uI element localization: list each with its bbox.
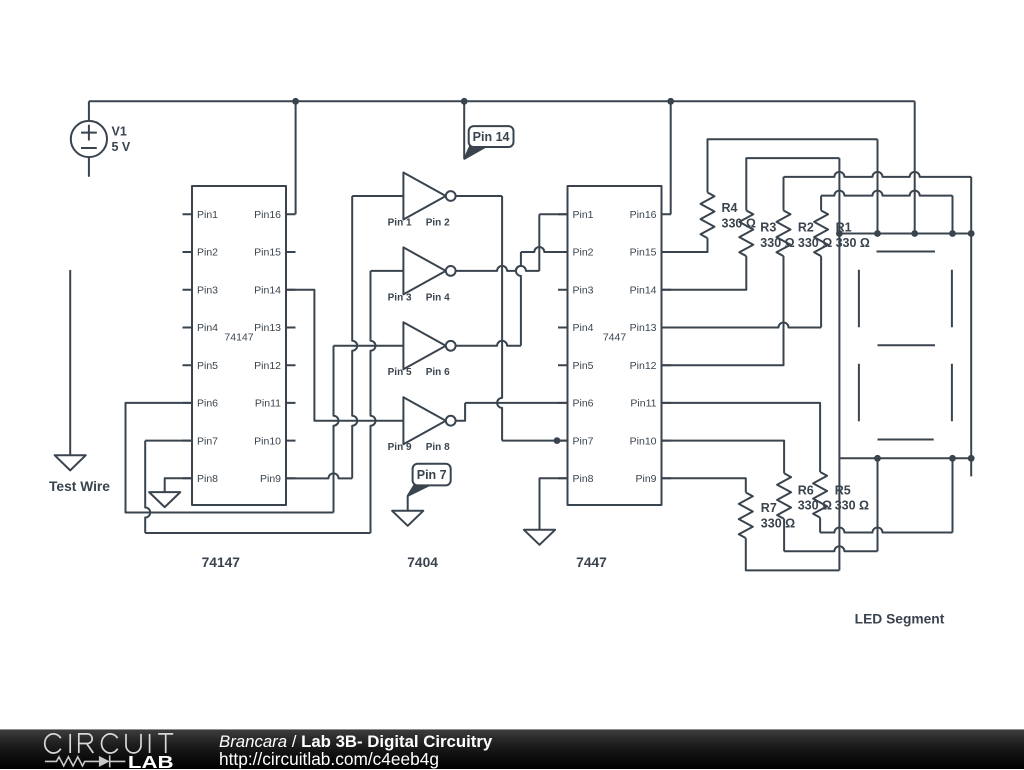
svg-text:Pin8: Pin8 (573, 473, 594, 485)
svg-text:Pin 6: Pin 6 (426, 367, 450, 378)
svg-text:Pin8: Pin8 (197, 473, 218, 485)
svg-text:5 V: 5 V (112, 140, 131, 154)
svg-text:Pin 5: Pin 5 (388, 367, 412, 378)
svg-text:Pin12: Pin12 (630, 360, 657, 372)
svg-text:Pin4: Pin4 (197, 322, 218, 334)
svg-text:Pin1: Pin1 (573, 209, 594, 221)
svg-text:LAB: LAB (128, 751, 174, 769)
svg-text:R5: R5 (835, 483, 851, 497)
svg-text:Pin13: Pin13 (254, 322, 281, 334)
svg-text:Pin4: Pin4 (573, 322, 594, 334)
svg-text:R4: R4 (722, 201, 738, 215)
svg-text:Pin5: Pin5 (197, 360, 218, 372)
svg-text:7447: 7447 (603, 332, 627, 344)
svg-text:Pin 3: Pin 3 (388, 292, 412, 303)
svg-text:Pin11: Pin11 (630, 398, 656, 410)
svg-text:Pin10: Pin10 (630, 435, 657, 447)
svg-text:Pin14: Pin14 (630, 284, 657, 296)
svg-text:R6: R6 (798, 483, 814, 497)
svg-text:Pin7: Pin7 (197, 435, 218, 447)
svg-text:LED Segment: LED Segment (855, 612, 945, 627)
svg-text:Test Wire: Test Wire (49, 479, 110, 494)
svg-text:Pin3: Pin3 (197, 284, 218, 296)
svg-text:74147: 74147 (202, 555, 241, 570)
svg-text:Pin14: Pin14 (254, 284, 281, 296)
svg-text:Pin15: Pin15 (254, 247, 281, 259)
svg-text:Pin10: Pin10 (254, 435, 281, 447)
svg-text:330 Ω: 330 Ω (836, 236, 870, 250)
svg-text:Pin 7: Pin 7 (417, 468, 447, 482)
svg-text:Pin11: Pin11 (255, 398, 281, 410)
svg-text:R7: R7 (761, 501, 777, 515)
svg-text:Pin 9: Pin 9 (388, 442, 412, 453)
svg-text:Pin2: Pin2 (573, 247, 594, 259)
svg-text:330 Ω: 330 Ω (798, 236, 832, 250)
svg-text:Pin9: Pin9 (260, 473, 281, 485)
svg-text:Pin9: Pin9 (635, 473, 656, 485)
svg-text:Pin13: Pin13 (630, 322, 657, 334)
svg-text:Pin16: Pin16 (630, 209, 657, 221)
svg-text:Pin 8: Pin 8 (426, 442, 450, 453)
svg-text:330 Ω: 330 Ω (761, 516, 795, 530)
svg-text:Pin2: Pin2 (197, 247, 218, 259)
svg-text:Pin 4: Pin 4 (426, 292, 450, 303)
svg-text:330 Ω: 330 Ω (798, 498, 832, 512)
svg-text:R3: R3 (760, 221, 776, 235)
svg-text:Pin5: Pin5 (573, 360, 594, 372)
svg-text:Pin3: Pin3 (573, 284, 594, 296)
svg-text:R2: R2 (798, 221, 814, 235)
svg-text:74147: 74147 (224, 332, 253, 344)
svg-text:V1: V1 (112, 124, 127, 138)
svg-text:Pin 2: Pin 2 (426, 217, 450, 228)
svg-text:Pin1: Pin1 (197, 209, 218, 221)
svg-text:Pin 14: Pin 14 (473, 130, 510, 144)
svg-text:Pin16: Pin16 (254, 209, 281, 221)
svg-text:Pin12: Pin12 (254, 360, 281, 372)
svg-text:Pin7: Pin7 (573, 435, 594, 447)
svg-text:Pin15: Pin15 (630, 247, 657, 259)
svg-text:7447: 7447 (576, 555, 607, 570)
svg-text:7404: 7404 (407, 555, 438, 570)
svg-text:Pin 1: Pin 1 (388, 217, 412, 228)
svg-text:Pin6: Pin6 (573, 398, 594, 410)
svg-text:Pin6: Pin6 (197, 398, 218, 410)
